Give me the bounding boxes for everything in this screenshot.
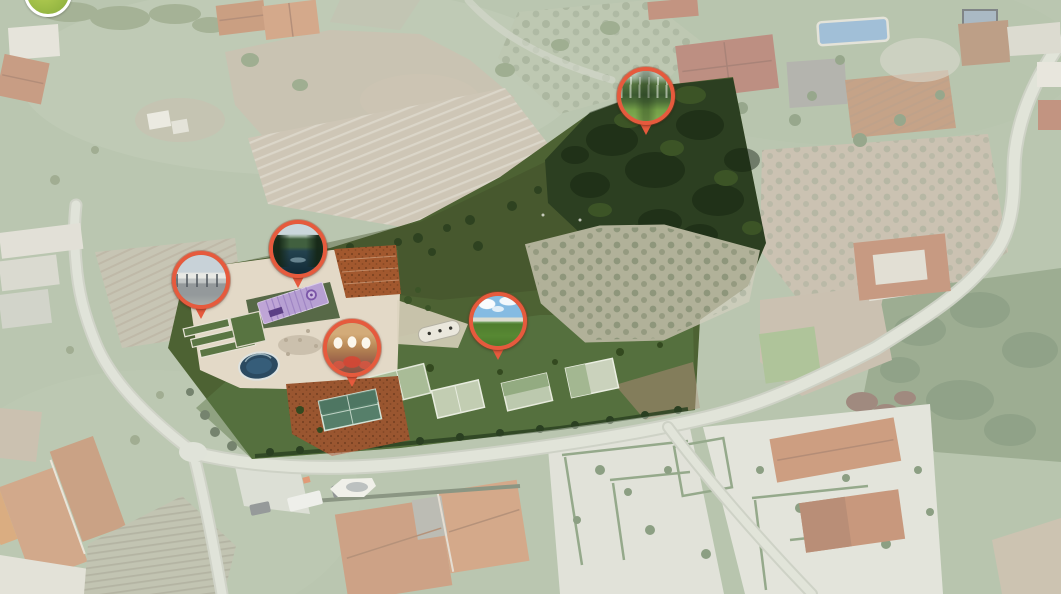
green-field-photo xyxy=(473,296,523,346)
trees-photo xyxy=(621,71,671,121)
dining-room-photo-marker[interactable] xyxy=(323,319,381,389)
pergola-photo-marker[interactable] xyxy=(172,251,230,321)
dining-room-photo xyxy=(327,323,377,373)
woodland-photo-marker[interactable] xyxy=(617,67,675,137)
marker-photo-thumbnail xyxy=(269,220,327,278)
marker-photo-thumbnail xyxy=(469,292,527,350)
pool-photo-marker[interactable] xyxy=(269,220,327,290)
marker-photo-thumbnail xyxy=(617,67,675,125)
satellite-imagery xyxy=(0,0,1061,594)
map-canvas[interactable] xyxy=(0,0,1061,594)
meadow-photo-marker[interactable] xyxy=(469,292,527,362)
marker-photo-thumbnail xyxy=(323,319,381,377)
marker-photo-thumbnail xyxy=(172,251,230,309)
swimming-pool-photo xyxy=(273,224,323,274)
pergola-photo xyxy=(176,255,226,305)
